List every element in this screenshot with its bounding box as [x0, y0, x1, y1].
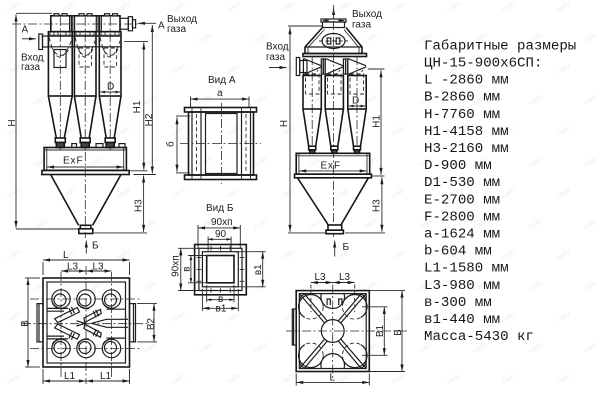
svg-text:сайт: сайт: [500, 372, 517, 386]
svg-text:сайт: сайт: [335, 186, 352, 200]
svg-text:сайт: сайт: [280, 62, 297, 76]
svg-text:Вход: Вход: [266, 42, 289, 53]
svg-text:сайт: сайт: [582, 217, 599, 231]
svg-text:сайт: сайт: [582, 31, 599, 45]
svg-text:сайт: сайт: [500, 310, 517, 324]
svg-text:Н1: Н1: [372, 115, 383, 128]
svg-text:В2: В2: [146, 317, 157, 330]
svg-text:В: В: [20, 320, 31, 327]
svg-text:Вид А: Вид А: [208, 75, 236, 86]
svg-text:сайт: сайт: [5, 186, 22, 200]
svg-text:сайт: сайт: [225, 62, 242, 76]
svg-text:сайт: сайт: [362, 155, 379, 169]
svg-text:Н: Н: [279, 120, 290, 127]
svg-text:сайт: сайт: [555, 0, 572, 14]
svg-text:Н1: Н1: [132, 100, 143, 113]
svg-text:сайт: сайт: [555, 186, 572, 200]
svg-text:Н-7760 мм: Н-7760 мм: [424, 107, 500, 123]
svg-text:сайт: сайт: [252, 155, 269, 169]
svg-text:Е: Е: [321, 161, 328, 172]
svg-text:сайт: сайт: [555, 310, 572, 324]
svg-text:сайт: сайт: [280, 0, 297, 14]
svg-text:D-900 мм: D-900 мм: [424, 158, 492, 174]
svg-text:Н2: Н2: [144, 113, 155, 126]
svg-text:в-300 мм: в-300 мм: [424, 295, 492, 311]
svg-text:сайт: сайт: [142, 279, 159, 293]
svg-text:сайт: сайт: [252, 279, 269, 293]
svg-text:сайт: сайт: [252, 93, 269, 107]
svg-text:сайт: сайт: [142, 93, 159, 107]
svg-text:сайт: сайт: [445, 372, 462, 386]
svg-text:сайт: сайт: [142, 31, 159, 45]
svg-text:б: б: [165, 141, 177, 147]
svg-text:сайт: сайт: [280, 248, 297, 262]
svg-text:а: а: [217, 88, 223, 99]
svg-text:сайт: сайт: [115, 62, 132, 76]
svg-text:сайт: сайт: [335, 372, 352, 386]
svg-text:сайт: сайт: [115, 372, 132, 386]
svg-text:сайт: сайт: [197, 31, 214, 45]
svg-text:сайт: сайт: [142, 341, 159, 355]
svg-text:сайт: сайт: [225, 310, 242, 324]
svg-text:Н3: Н3: [372, 199, 383, 212]
svg-text:сайт: сайт: [280, 372, 297, 386]
svg-text:сайт: сайт: [142, 155, 159, 169]
svg-text:90хп: 90хп: [170, 255, 181, 277]
svg-text:х: х: [328, 161, 333, 172]
svg-text:сайт: сайт: [5, 62, 22, 76]
svg-text:Выход: Выход: [352, 9, 382, 20]
svg-text:сайт: сайт: [5, 372, 22, 386]
svg-text:b-604 мм: b-604 мм: [424, 244, 492, 260]
svg-text:сайт: сайт: [170, 124, 187, 138]
svg-text:сайт: сайт: [555, 124, 572, 138]
svg-text:сайт: сайт: [390, 372, 407, 386]
svg-text:D1-530 мм: D1-530 мм: [424, 175, 500, 191]
svg-text:Н3: Н3: [134, 199, 145, 212]
svg-text:F-2800 мм: F-2800 мм: [424, 209, 500, 225]
svg-text:Е-2700 мм: Е-2700 мм: [424, 192, 500, 208]
svg-text:сайт: сайт: [527, 93, 544, 107]
svg-text:Н1-4158 мм: Н1-4158 мм: [424, 124, 509, 140]
svg-text:А: А: [158, 21, 165, 32]
svg-text:сайт: сайт: [170, 186, 187, 200]
svg-text:L3: L3: [67, 262, 79, 273]
svg-text:сайт: сайт: [390, 124, 407, 138]
svg-text:сайт: сайт: [555, 372, 572, 386]
svg-text:Масса-5430 кг: Масса-5430 кг: [424, 329, 534, 345]
svg-text:сайт: сайт: [390, 248, 407, 262]
svg-text:сайт: сайт: [60, 124, 77, 138]
svg-text:сайт: сайт: [115, 124, 132, 138]
svg-text:Б: Б: [92, 241, 99, 252]
svg-text:сайт: сайт: [5, 248, 22, 262]
svg-text:Е: Е: [63, 156, 70, 167]
svg-text:сайт: сайт: [582, 155, 599, 169]
svg-text:сайт: сайт: [362, 217, 379, 231]
svg-text:сайт: сайт: [390, 62, 407, 76]
svg-text:сайт: сайт: [500, 248, 517, 262]
svg-text:L3: L3: [315, 272, 327, 283]
svg-text:В1: В1: [375, 324, 386, 337]
svg-text:сайт: сайт: [197, 341, 214, 355]
svg-text:сайт: сайт: [170, 62, 187, 76]
svg-text:Н3-2160 мм: Н3-2160 мм: [424, 141, 509, 157]
svg-text:в1-440 мм: в1-440 мм: [424, 312, 500, 328]
svg-text:сайт: сайт: [225, 186, 242, 200]
svg-text:L3-980 мм: L3-980 мм: [424, 278, 500, 294]
svg-text:газа: газа: [352, 20, 371, 31]
svg-text:L3: L3: [93, 262, 105, 273]
svg-text:L1: L1: [64, 371, 76, 382]
svg-text:сайт: сайт: [527, 217, 544, 231]
svg-text:газа: газа: [266, 52, 285, 63]
svg-text:Габаритные размеры: Габаритные размеры: [424, 37, 576, 54]
svg-text:сайт: сайт: [225, 0, 242, 14]
svg-text:D: D: [352, 96, 359, 107]
svg-text:в1: в1: [216, 304, 227, 315]
svg-text:сайт: сайт: [500, 186, 517, 200]
svg-text:сайт: сайт: [390, 0, 407, 14]
svg-text:В: В: [393, 329, 404, 336]
svg-text:В-2860 мм: В-2860 мм: [424, 90, 500, 106]
svg-text:сайт: сайт: [500, 0, 517, 14]
svg-text:А: А: [22, 25, 29, 36]
svg-text:сайт: сайт: [115, 0, 132, 14]
svg-text:L -2860 мм: L -2860 мм: [424, 73, 509, 89]
svg-text:сайт: сайт: [527, 279, 544, 293]
svg-text:а-1624 мм: а-1624 мм: [424, 227, 500, 243]
svg-text:L1: L1: [100, 371, 112, 382]
svg-text:сайт: сайт: [582, 341, 599, 355]
svg-text:сайт: сайт: [307, 217, 324, 231]
svg-text:сайт: сайт: [390, 186, 407, 200]
svg-text:90хп: 90хп: [211, 217, 233, 228]
svg-text:сайт: сайт: [582, 279, 599, 293]
svg-text:сайт: сайт: [390, 310, 407, 324]
svg-text:сайт: сайт: [252, 341, 269, 355]
svg-text:F: F: [334, 161, 340, 172]
svg-text:L3: L3: [339, 272, 351, 283]
svg-text:сайт: сайт: [555, 248, 572, 262]
svg-text:F: F: [77, 156, 83, 167]
svg-text:сайт: сайт: [335, 0, 352, 14]
svg-text:Б: Б: [343, 242, 350, 253]
svg-text:90: 90: [215, 229, 227, 240]
svg-text:сайт: сайт: [280, 186, 297, 200]
svg-text:L1-1580 мм: L1-1580 мм: [424, 261, 509, 277]
svg-text:L: L: [330, 373, 336, 384]
svg-text:газа: газа: [167, 24, 186, 35]
svg-text:Н: Н: [7, 119, 18, 126]
svg-text:сайт: сайт: [555, 62, 572, 76]
svg-text:сайт: сайт: [527, 155, 544, 169]
svg-text:сайт: сайт: [170, 372, 187, 386]
svg-text:сайт: сайт: [197, 93, 214, 107]
svg-text:сайт: сайт: [170, 0, 187, 14]
svg-text:сайт: сайт: [225, 372, 242, 386]
svg-text:сайт: сайт: [115, 186, 132, 200]
svg-text:сайт: сайт: [170, 310, 187, 324]
svg-text:сайт: сайт: [362, 31, 379, 45]
svg-text:сайт: сайт: [252, 217, 269, 231]
svg-text:сайт: сайт: [362, 93, 379, 107]
svg-text:сайт: сайт: [5, 0, 22, 14]
svg-text:газа: газа: [21, 62, 40, 73]
svg-text:ЦН-15-900х6СП:: ЦН-15-900х6СП:: [424, 56, 542, 72]
svg-text:сайт: сайт: [142, 217, 159, 231]
svg-text:сайт: сайт: [32, 31, 49, 45]
svg-text:сайт: сайт: [582, 93, 599, 107]
svg-text:сайт: сайт: [225, 124, 242, 138]
svg-text:сайт: сайт: [280, 310, 297, 324]
svg-text:х: х: [71, 156, 76, 167]
svg-text:D: D: [107, 82, 114, 93]
svg-text:сайт: сайт: [32, 93, 49, 107]
svg-text:Вид Б: Вид Б: [206, 203, 234, 214]
svg-text:сайт: сайт: [60, 0, 77, 14]
svg-text:сайт: сайт: [445, 0, 462, 14]
svg-text:L: L: [63, 250, 69, 261]
